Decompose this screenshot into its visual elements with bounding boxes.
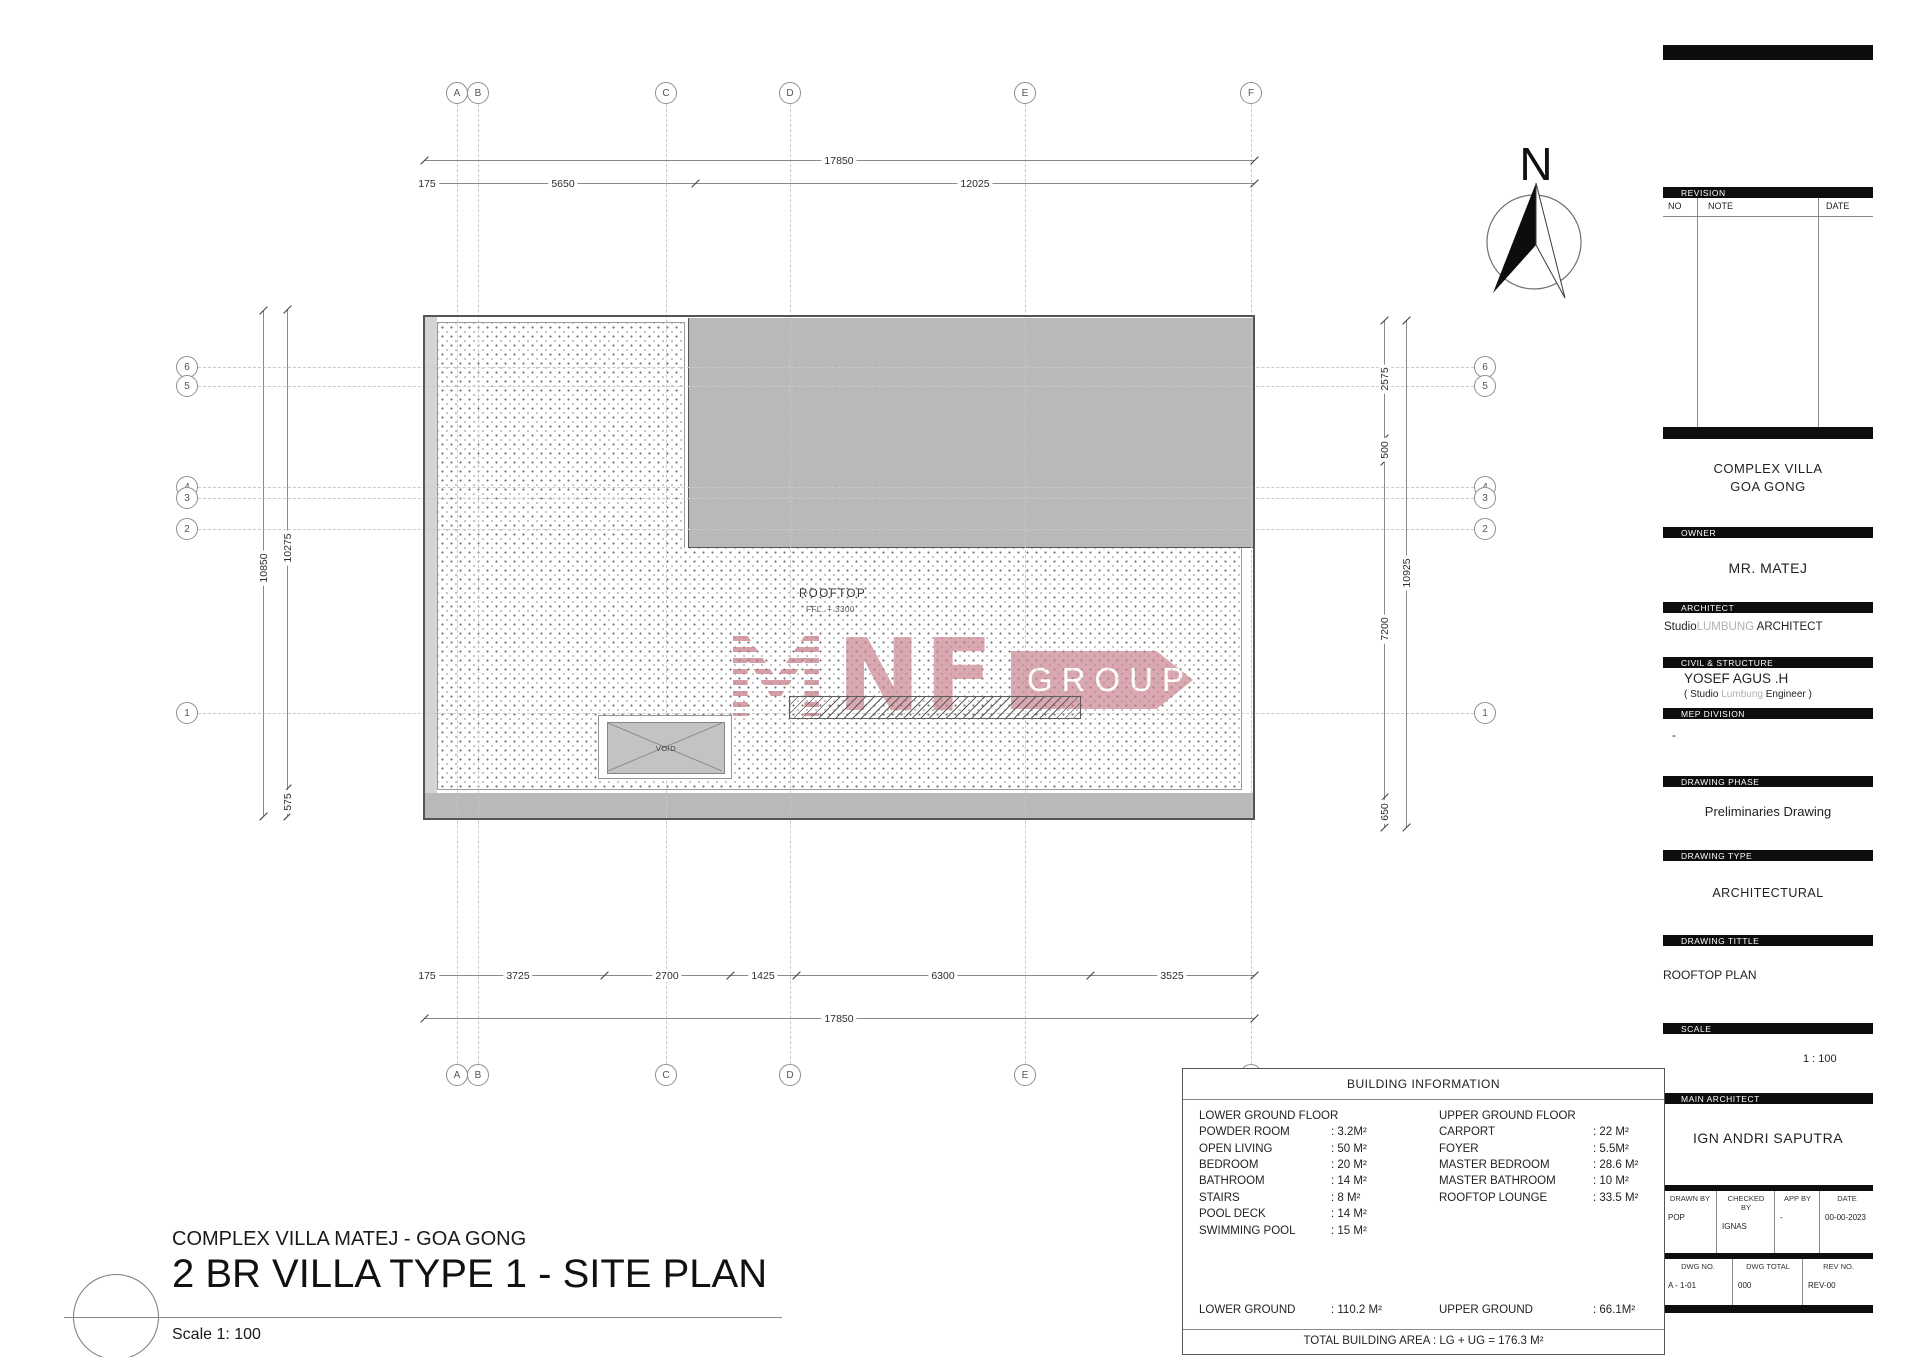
- grid-line-col-C: [666, 104, 667, 1064]
- dimension-label: 5650: [548, 178, 577, 190]
- building-info-right-column: UPPER GROUND FLOOR CARPORT: 22 M²FOYER: …: [1439, 1107, 1654, 1206]
- civil-engineer-name: YOSEF AGUS .H: [1684, 671, 1788, 686]
- building-info-row: SWIMMING POOL: 15 M²: [1199, 1222, 1429, 1238]
- grid-bubble-1: 1: [1474, 702, 1496, 724]
- meta-cell-date: DATE00-00-2023: [1820, 1191, 1873, 1253]
- grid-line-col-F: [1251, 104, 1252, 1064]
- building-info-row: OPEN LIVING: 50 M²: [1199, 1140, 1429, 1156]
- dimension-label: 7200: [1379, 614, 1391, 643]
- room-label: ROOFTOP: [799, 588, 866, 600]
- room-level-label: FFL. + 3300: [806, 605, 855, 614]
- building-info-left-column: LOWER GROUND FLOOR POWDER ROOM: 3.2M²OPE…: [1199, 1107, 1429, 1239]
- grid-bubble-1: 1: [176, 702, 198, 724]
- meta-row-2: DWG NO.A - 1-01DWG TOTAL000REV NO.REV-00: [1663, 1259, 1873, 1305]
- sheet-title: 2 BR VILLA TYPE 1 - SITE PLAN: [172, 1252, 767, 1297]
- titleblock-top-bar: [1663, 45, 1873, 60]
- north-label: N: [1519, 138, 1552, 190]
- dimension-label: 1425: [748, 970, 777, 982]
- drawing-sheet: NF GROUP VOID ROOFTOP FFL. + 3300 N REVI…: [0, 0, 1920, 1357]
- dimension-label: 175: [415, 178, 439, 190]
- grid-bubble-D: D: [779, 1064, 801, 1086]
- building-info-title: BUILDING INFORMATION: [1183, 1077, 1664, 1091]
- building-info-row: BATHROOM: 14 M²: [1199, 1173, 1429, 1189]
- titleblock-divider-bar: [1663, 427, 1873, 439]
- project-name-line1: COMPLEX VILLA: [1663, 461, 1873, 476]
- grid-line-row-4: [198, 487, 1474, 488]
- scale-header-bar: SCALE: [1663, 1023, 1873, 1034]
- phase-value: Preliminaries Drawing: [1663, 804, 1873, 819]
- scale-value: 1 : 100: [1803, 1053, 1837, 1065]
- civil-header-bar: CIVIL & STRUCTURE: [1663, 657, 1873, 668]
- meta-cell-rev-no-: REV NO.REV-00: [1803, 1259, 1873, 1305]
- main-architect-header-bar: MAIN ARCHITECT: [1663, 1093, 1873, 1104]
- dimension-line: [1384, 320, 1385, 827]
- owner-name: MR. MATEJ: [1663, 560, 1873, 576]
- titleblock-bottom-bar: [1663, 1305, 1873, 1313]
- revision-col-no: NO: [1668, 201, 1682, 211]
- roof-beam-hatch: [789, 696, 1081, 719]
- void-opening: VOID: [598, 715, 732, 779]
- revision-header-bar: REVISION: [1663, 187, 1873, 198]
- void-opening-fill: VOID: [607, 722, 725, 774]
- meta-cell-dwg-no-: DWG NO.A - 1-01: [1663, 1259, 1733, 1305]
- building-info-row: BEDROOM: 20 M²: [1199, 1157, 1429, 1173]
- meta-row-1: DRAWN BYPOPCHECKED BYIGNASAPP BY-DATE00-…: [1663, 1191, 1873, 1253]
- grid-bubble-3: 3: [1474, 487, 1496, 509]
- building-info-right-heading: UPPER GROUND FLOOR: [1439, 1107, 1654, 1124]
- grid-line-row-5: [198, 386, 1474, 387]
- dimension-label: 3525: [1157, 970, 1186, 982]
- meta-cell-checked-by: CHECKED BYIGNAS: [1717, 1191, 1775, 1253]
- building-info-total-area: TOTAL BUILDING AREA : LG + UG = 176.3 M²: [1183, 1335, 1664, 1347]
- dimension-label: 17850: [821, 1013, 856, 1025]
- dimension-label: 17850: [821, 155, 856, 167]
- grid-bubble-5: 5: [176, 375, 198, 397]
- type-header-bar: DRAWING TYPE: [1663, 850, 1873, 861]
- dimension-label: 650: [1379, 800, 1391, 824]
- building-info-row: CARPORT: 22 M²: [1439, 1124, 1654, 1140]
- dimension-label: 2700: [652, 970, 681, 982]
- grid-line-row-6: [198, 367, 1474, 368]
- type-value: ARCHITECTURAL: [1663, 886, 1873, 900]
- grid-line-col-D: [790, 104, 791, 1064]
- civil-engineer-sub: ( Studio Lumbung Engineer ): [1684, 689, 1812, 700]
- plan-left-edge-strip: [424, 317, 437, 793]
- owner-header-bar: OWNER: [1663, 527, 1873, 538]
- sheet-project-name: COMPLEX VILLA MATEJ - GOA GONG: [172, 1228, 526, 1251]
- dimension-label: 6300: [928, 970, 957, 982]
- meta-cell-app-by: APP BY-: [1775, 1191, 1820, 1253]
- dimension-label: 2575: [1379, 364, 1391, 393]
- building-info-row: ROOFTOP LOUNGE: 33.5 M²: [1439, 1190, 1654, 1206]
- grid-bubble-C: C: [655, 82, 677, 104]
- main-architect-name: IGN ANDRI SAPUTRA: [1663, 1130, 1873, 1146]
- grid-line-row-2: [198, 529, 1474, 530]
- grid-bubble-5: 5: [1474, 375, 1496, 397]
- grid-line-col-B: [478, 104, 479, 1064]
- plan-bottom-band: [425, 793, 1253, 818]
- architect-header-bar: ARCHITECT: [1663, 602, 1873, 613]
- grid-bubble-C: C: [655, 1064, 677, 1086]
- sheet-title-circle: [73, 1274, 159, 1357]
- building-info-row: MASTER BEDROOM: 28.6 M²: [1439, 1157, 1654, 1173]
- building-info-row: MASTER BATHROOM: 10 M²: [1439, 1173, 1654, 1189]
- project-name-line2: GOA GONG: [1663, 479, 1873, 494]
- grid-bubble-A: A: [446, 82, 468, 104]
- sheet-scale: Scale 1: 100: [172, 1326, 261, 1344]
- grid-line-col-A: [457, 104, 458, 1064]
- dimension-label: 12025: [957, 178, 992, 190]
- building-information-table: BUILDING INFORMATION LOWER GROUND FLOOR …: [1182, 1068, 1665, 1355]
- rooftop-deck-upper-left: [437, 322, 685, 548]
- building-info-row: STAIRS: 8 M²: [1199, 1190, 1429, 1206]
- grid-bubble-A: A: [446, 1064, 468, 1086]
- grid-line-col-E: [1025, 104, 1026, 1064]
- building-info-row: POOL DECK: 14 M²: [1199, 1206, 1429, 1222]
- sheet-title-rule: [64, 1317, 782, 1318]
- phase-header-bar: DRAWING PHASE: [1663, 776, 1873, 787]
- dimension-label: 175: [415, 970, 439, 982]
- meta-cell-drawn-by: DRAWN BYPOP: [1663, 1191, 1717, 1253]
- grid-bubble-2: 2: [176, 518, 198, 540]
- dimension-label: 10275: [282, 530, 294, 565]
- meta-cell-dwg-total: DWG TOTAL000: [1733, 1259, 1803, 1305]
- watermark-group-label: GROUP: [1027, 661, 1193, 699]
- mep-header-bar: MEP DIVISION: [1663, 708, 1873, 719]
- north-arrow: N: [1455, 128, 1615, 323]
- building-info-total-right: UPPER GROUND : 66.1M²: [1439, 1301, 1654, 1319]
- dimension-label: 3725: [503, 970, 532, 982]
- revision-col-note: NOTE: [1708, 201, 1733, 211]
- building-info-total-left: LOWER GROUND : 110.2 M²: [1199, 1301, 1429, 1319]
- building-info-row: POWDER ROOM: 3.2M²: [1199, 1124, 1429, 1140]
- grid-bubble-E: E: [1014, 82, 1036, 104]
- grid-bubble-3: 3: [176, 487, 198, 509]
- grid-bubble-B: B: [467, 82, 489, 104]
- building-info-row: FOYER: 5.5M²: [1439, 1140, 1654, 1156]
- grid-bubble-F: F: [1240, 82, 1262, 104]
- drawing-title-value: ROOFTOP PLAN: [1663, 968, 1757, 982]
- grid-bubble-B: B: [467, 1064, 489, 1086]
- grid-bubble-E: E: [1014, 1064, 1036, 1086]
- architect-name: StudioLUMBUNG ARCHITECT: [1664, 621, 1823, 633]
- dimension-label: 10925: [1401, 555, 1413, 590]
- roof-solid-area: [688, 318, 1254, 548]
- void-label: VOID: [608, 723, 724, 773]
- dimension-line: [424, 975, 1254, 976]
- drawing-title-header-bar: DRAWING TITTLE: [1663, 935, 1873, 946]
- dimension-label: 575: [282, 790, 294, 814]
- building-info-left-heading: LOWER GROUND FLOOR: [1199, 1107, 1429, 1124]
- dimension-label: 500: [1379, 438, 1391, 462]
- mep-value: -: [1672, 728, 1676, 742]
- grid-bubble-2: 2: [1474, 518, 1496, 540]
- grid-bubble-D: D: [779, 82, 801, 104]
- dimension-label: 10850: [258, 550, 270, 585]
- grid-line-row-3: [198, 498, 1474, 499]
- revision-col-date: DATE: [1826, 201, 1849, 211]
